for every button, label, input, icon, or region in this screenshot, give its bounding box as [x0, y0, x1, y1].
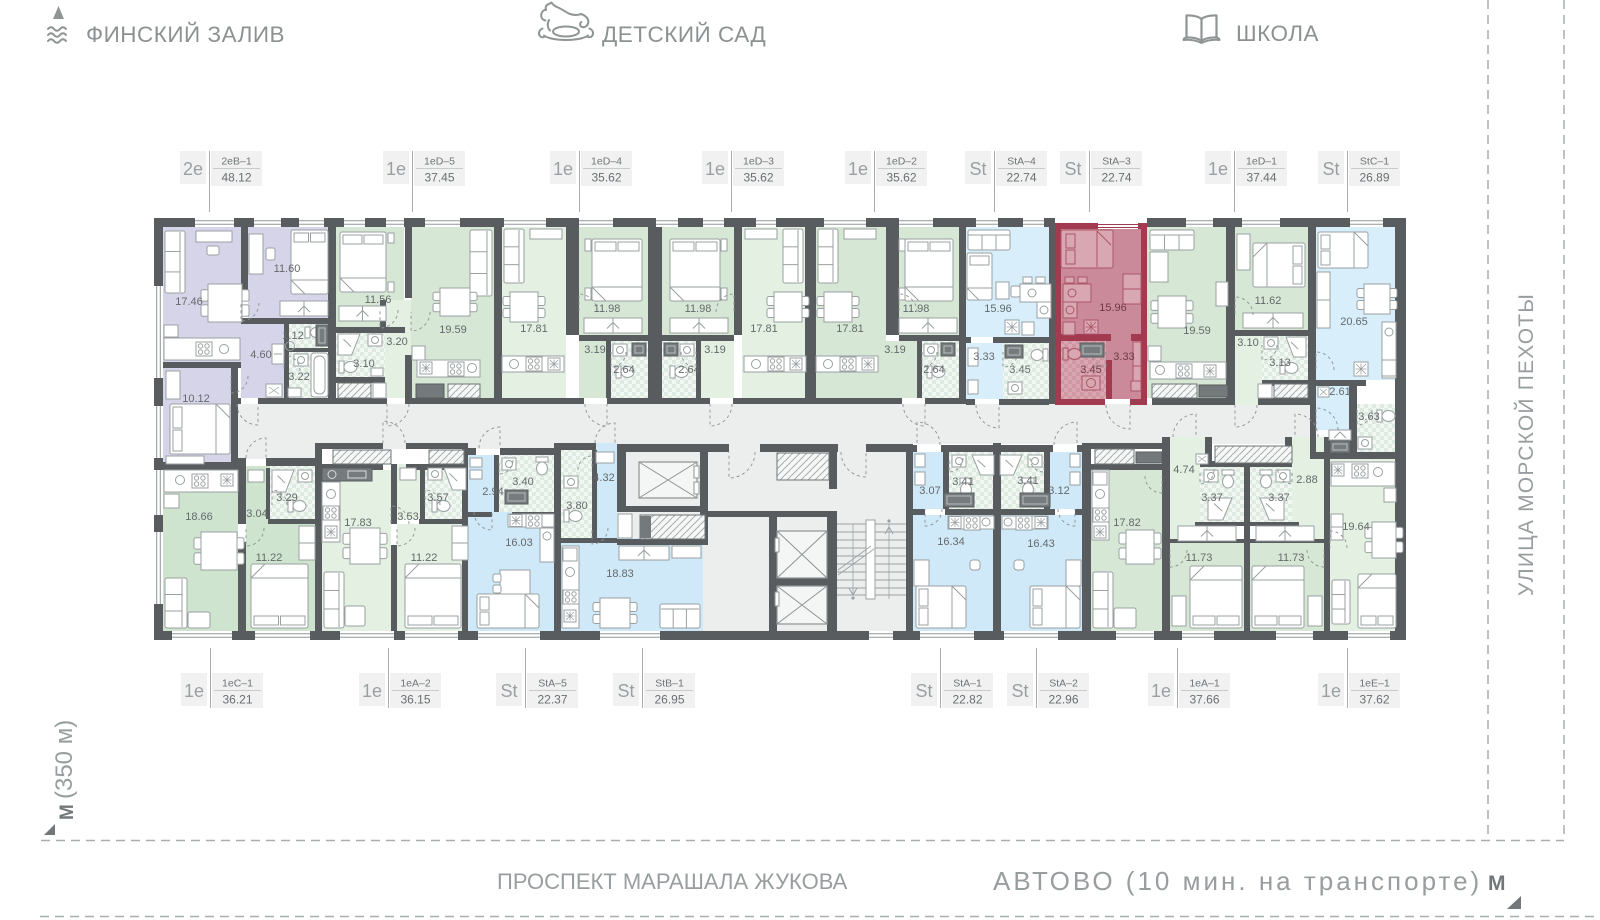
svg-text:3.20: 3.20 — [386, 336, 407, 348]
svg-text:17.83: 17.83 — [344, 517, 372, 529]
svg-text:StB–1: StB–1 — [655, 678, 684, 690]
svg-text:StA–1: StA–1 — [953, 678, 982, 690]
svg-text:ФИНСКИЙ ЗАЛИВ: ФИНСКИЙ ЗАЛИВ — [86, 22, 285, 47]
svg-text:11.22: 11.22 — [411, 552, 438, 564]
svg-text:М: М — [1488, 872, 1506, 895]
svg-text:3.80: 3.80 — [566, 500, 587, 512]
svg-text:St: St — [1064, 159, 1081, 179]
svg-text:18.66: 18.66 — [185, 511, 213, 523]
svg-text:2.64: 2.64 — [613, 364, 634, 376]
svg-text:2еВ–1: 2еВ–1 — [221, 156, 252, 168]
svg-text:22.37: 22.37 — [537, 693, 567, 707]
svg-text:15.96: 15.96 — [1099, 302, 1127, 314]
svg-text:11.98: 11.98 — [594, 303, 621, 315]
svg-text:2.64: 2.64 — [678, 364, 699, 376]
svg-text:3.37: 3.37 — [1201, 492, 1222, 504]
svg-text:17.81: 17.81 — [750, 323, 778, 335]
svg-text:St: St — [969, 159, 986, 179]
svg-text:3.22: 3.22 — [288, 371, 309, 383]
svg-text:11.60: 11.60 — [274, 263, 301, 275]
svg-text:3.13: 3.13 — [1269, 357, 1290, 369]
svg-text:26.95: 26.95 — [654, 693, 684, 707]
svg-text:1е: 1е — [705, 159, 725, 179]
svg-text:1еD–4: 1еD–4 — [591, 156, 622, 168]
svg-text:3.40: 3.40 — [512, 476, 533, 488]
svg-text:2.61: 2.61 — [1329, 386, 1350, 398]
svg-text:1е: 1е — [1321, 681, 1341, 701]
svg-text:3.57: 3.57 — [427, 492, 448, 504]
svg-text:2е: 2е — [183, 159, 203, 179]
svg-text:36.21: 36.21 — [222, 693, 252, 707]
svg-text:17.81: 17.81 — [520, 323, 548, 335]
svg-text:37.44: 37.44 — [1246, 171, 1276, 185]
svg-text:3.33: 3.33 — [973, 351, 994, 363]
svg-text:16.43: 16.43 — [1027, 538, 1055, 550]
svg-text:3.41: 3.41 — [1017, 475, 1038, 487]
svg-text:St: St — [500, 681, 517, 701]
svg-text:11.98: 11.98 — [903, 303, 930, 315]
svg-text:22.82: 22.82 — [952, 693, 982, 707]
svg-text:11.73: 11.73 — [1278, 552, 1305, 564]
svg-text:4.74: 4.74 — [1173, 464, 1194, 476]
svg-text:St: St — [617, 681, 634, 701]
svg-text:1е: 1е — [362, 681, 382, 701]
svg-text:1е: 1е — [386, 159, 406, 179]
svg-text:22.74: 22.74 — [1101, 171, 1131, 185]
svg-text:11.98: 11.98 — [685, 303, 712, 315]
svg-text:3.10: 3.10 — [1237, 337, 1258, 349]
svg-text:1еD–2: 1еD–2 — [886, 156, 917, 168]
svg-text:4.32: 4.32 — [593, 472, 614, 484]
svg-text:3.12: 3.12 — [1048, 485, 1069, 497]
svg-text:StA–3: StA–3 — [1102, 156, 1131, 168]
svg-text:3.45: 3.45 — [1080, 364, 1101, 376]
svg-text:17.46: 17.46 — [175, 296, 203, 308]
svg-text:3.45: 3.45 — [1009, 364, 1030, 376]
svg-text:3.04: 3.04 — [246, 508, 267, 520]
svg-text:37.66: 37.66 — [1189, 693, 1219, 707]
svg-text:St: St — [1011, 681, 1028, 701]
svg-text:1еС–1: 1еС–1 — [222, 678, 253, 690]
svg-text:1еD–3: 1еD–3 — [743, 156, 774, 168]
svg-text:3.10: 3.10 — [353, 358, 374, 370]
svg-text:11.62: 11.62 — [1255, 295, 1282, 307]
svg-text:11.73: 11.73 — [1186, 552, 1213, 564]
svg-text:1еА–2: 1еА–2 — [400, 678, 431, 690]
svg-text:16.03: 16.03 — [505, 537, 533, 549]
svg-text:1е: 1е — [184, 681, 204, 701]
svg-text:4.60: 4.60 — [250, 349, 271, 361]
svg-text:2.88: 2.88 — [1296, 474, 1317, 486]
svg-text:36.15: 36.15 — [400, 693, 430, 707]
svg-text:17.82: 17.82 — [1113, 517, 1141, 529]
svg-text:18.83: 18.83 — [606, 568, 634, 580]
svg-text:3.19: 3.19 — [704, 344, 725, 356]
svg-text:37.62: 37.62 — [1359, 693, 1389, 707]
svg-text:37.45: 37.45 — [424, 171, 454, 185]
svg-text:АВТОВО (10 мин. на транспорте): АВТОВО (10 мин. на транспорте) — [993, 866, 1482, 896]
svg-text:16.34: 16.34 — [937, 536, 965, 548]
svg-text:3.37: 3.37 — [1268, 492, 1289, 504]
svg-text:1е: 1е — [553, 159, 573, 179]
svg-text:3.41: 3.41 — [952, 476, 973, 488]
svg-text:StA–4: StA–4 — [1007, 156, 1036, 168]
svg-text:19.59: 19.59 — [439, 324, 467, 336]
svg-text:St: St — [1322, 159, 1339, 179]
svg-text:35.62: 35.62 — [743, 171, 773, 185]
svg-text:St: St — [915, 681, 932, 701]
svg-text:2.64: 2.64 — [923, 364, 944, 376]
svg-text:StA–2: StA–2 — [1049, 678, 1078, 690]
svg-text:(350 м): (350 м) — [51, 720, 78, 799]
svg-text:11.22: 11.22 — [256, 552, 283, 564]
svg-text:1еD–5: 1еD–5 — [424, 156, 455, 168]
svg-text:1е: 1е — [1208, 159, 1228, 179]
svg-text:3.63: 3.63 — [1358, 411, 1379, 423]
svg-text:1еА–1: 1еА–1 — [1189, 678, 1220, 690]
svg-text:3.19: 3.19 — [884, 344, 905, 356]
svg-text:ПРОСПЕКТ МАРАШАЛА ЖУКОВА: ПРОСПЕКТ МАРАШАЛА ЖУКОВА — [497, 869, 848, 894]
svg-text:17.81: 17.81 — [836, 323, 864, 335]
svg-text:35.62: 35.62 — [886, 171, 916, 185]
svg-text:3.33: 3.33 — [1113, 351, 1134, 363]
svg-text:StC–1: StC–1 — [1360, 156, 1389, 168]
svg-text:1е: 1е — [848, 159, 868, 179]
svg-text:3.07: 3.07 — [919, 485, 940, 497]
svg-text:35.62: 35.62 — [591, 171, 621, 185]
svg-text:1е: 1е — [1151, 681, 1171, 701]
svg-text:15.96: 15.96 — [984, 303, 1012, 315]
svg-text:УЛИЦА МОРСКОЙ ПЕХОТЫ: УЛИЦА МОРСКОЙ ПЕХОТЫ — [1514, 293, 1538, 596]
svg-text:22.96: 22.96 — [1048, 693, 1078, 707]
svg-text:М: М — [57, 804, 78, 820]
svg-text:3.19: 3.19 — [584, 344, 605, 356]
svg-text:1еD–1: 1еD–1 — [1246, 156, 1277, 168]
svg-text:2.94: 2.94 — [482, 486, 503, 498]
svg-text:3.29: 3.29 — [276, 492, 297, 504]
svg-text:10.12: 10.12 — [182, 393, 210, 405]
svg-text:11.56: 11.56 — [365, 294, 392, 306]
svg-text:20.65: 20.65 — [1340, 316, 1368, 328]
svg-text:ШКОЛА: ШКОЛА — [1236, 21, 1319, 46]
svg-text:ДЕТСКИЙ САД: ДЕТСКИЙ САД — [602, 22, 766, 47]
svg-text:19.59: 19.59 — [1183, 325, 1211, 337]
svg-text:26.89: 26.89 — [1359, 171, 1389, 185]
svg-text:1.12: 1.12 — [282, 330, 303, 342]
svg-text:StA–5: StA–5 — [538, 678, 567, 690]
svg-text:19.64: 19.64 — [1342, 521, 1370, 533]
svg-text:1еЕ–1: 1еЕ–1 — [1359, 678, 1390, 690]
svg-text:48.12: 48.12 — [221, 171, 251, 185]
svg-text:3.53: 3.53 — [397, 511, 418, 523]
svg-text:22.74: 22.74 — [1006, 171, 1036, 185]
